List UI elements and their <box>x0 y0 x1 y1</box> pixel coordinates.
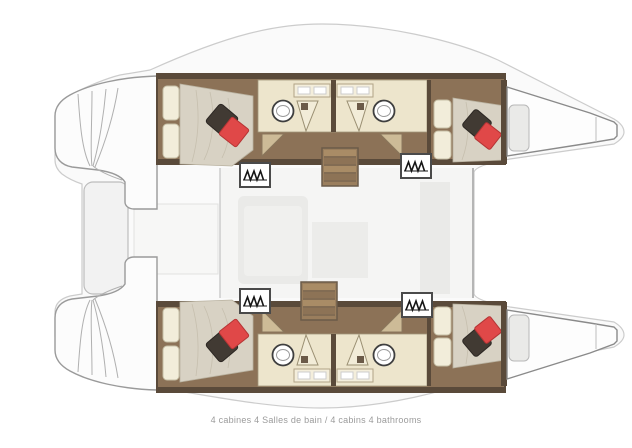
floorplan-stage: 4 cabines 4 Salles de bain / 4 cabins 4 … <box>0 0 632 448</box>
saloon-table <box>312 222 368 278</box>
stairs-icon <box>401 154 431 178</box>
saloon-lounge-inner <box>244 206 302 276</box>
companionway-steps-bottom <box>301 282 337 320</box>
stairs-icon <box>240 163 270 187</box>
caption: 4 cabines 4 Salles de bain / 4 cabins 4 … <box>0 415 632 425</box>
galley-unit <box>420 182 450 294</box>
aft-platform <box>84 182 128 294</box>
stairs-icon <box>402 293 432 317</box>
companionway-steps-top <box>322 148 358 186</box>
stairs-icon <box>240 289 270 313</box>
floorplan-svg <box>0 0 632 448</box>
